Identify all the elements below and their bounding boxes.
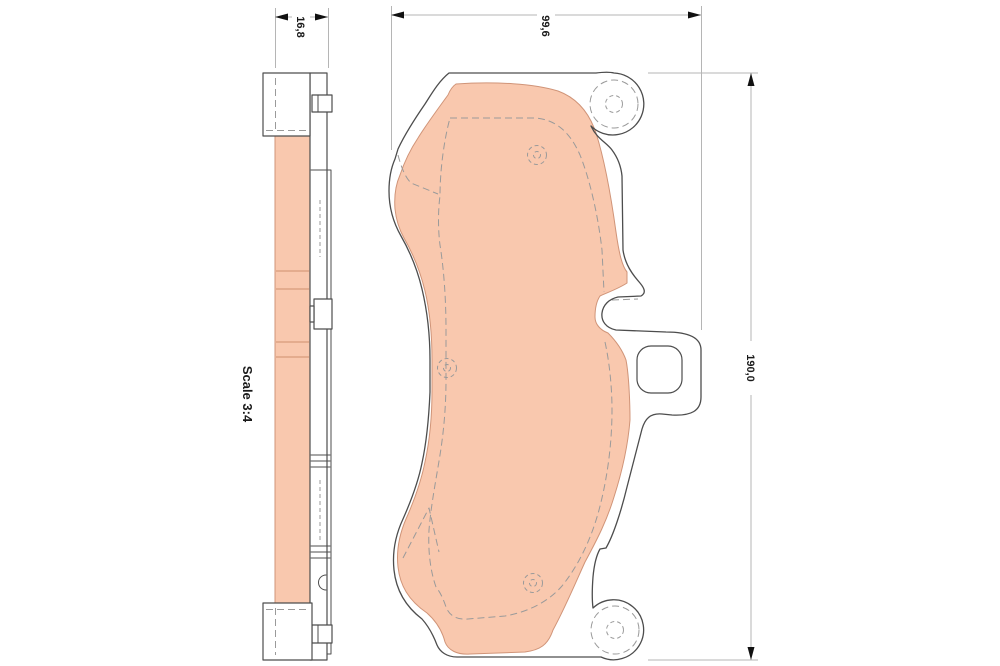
technical-drawing-svg: 16,8 99,6 190,0 Scale 3:4 bbox=[0, 0, 1000, 666]
arrow-right bbox=[688, 12, 701, 19]
arrow-left bbox=[391, 12, 404, 19]
hidden-edge-line bbox=[612, 299, 638, 300]
dimension-thickness: 16,8 bbox=[275, 5, 329, 68]
bottom-ear-inner-circle bbox=[591, 606, 639, 654]
bottom-ear-hole bbox=[607, 622, 624, 639]
middle-clip-tab bbox=[310, 306, 314, 322]
backing-plate-edge bbox=[310, 73, 327, 660]
dimension-height-label: 190,0 bbox=[744, 354, 756, 382]
arrow-down bbox=[748, 647, 755, 660]
middle-clip bbox=[314, 299, 332, 329]
arrow-left bbox=[275, 14, 288, 21]
bottom-ear bbox=[591, 606, 639, 654]
mounting-lug-hole bbox=[637, 346, 682, 393]
arrow-right bbox=[315, 14, 328, 21]
side-view bbox=[263, 73, 332, 660]
scale-label: Scale 3:4 bbox=[240, 366, 255, 423]
drawing-canvas: 16,8 99,6 190,0 Scale 3:4 bbox=[0, 0, 1000, 666]
top-ear-hole bbox=[606, 96, 623, 113]
bottom-ear-box bbox=[263, 603, 312, 660]
arrow-up bbox=[748, 73, 755, 86]
top-clip bbox=[312, 95, 332, 112]
bottom-clip bbox=[312, 625, 332, 643]
top-ear-inner-circle bbox=[590, 80, 638, 128]
top-ear bbox=[590, 80, 638, 128]
dimension-thickness-label: 16,8 bbox=[294, 16, 306, 37]
dimension-width-label: 99,6 bbox=[539, 15, 551, 36]
front-view bbox=[389, 72, 701, 660]
top-ear-box bbox=[263, 73, 310, 136]
friction-strip bbox=[275, 136, 310, 603]
